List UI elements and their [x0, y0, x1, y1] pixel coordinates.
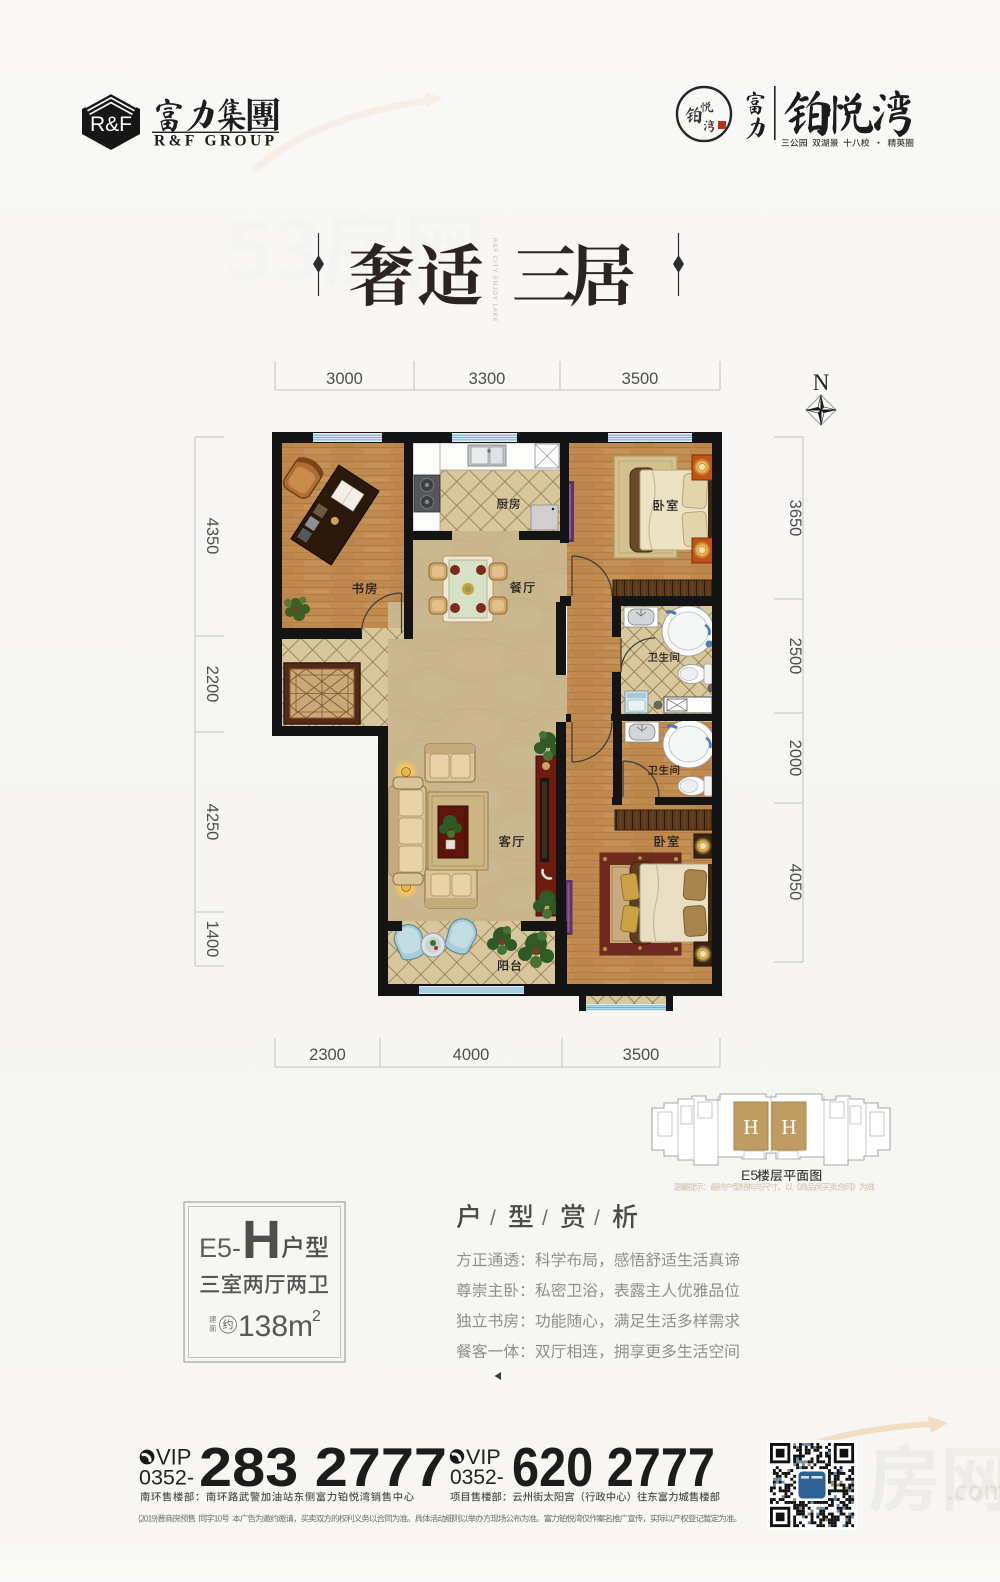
svg-text:4250: 4250: [203, 804, 221, 841]
svg-text:4000: 4000: [453, 1046, 490, 1064]
svg-text:R&F: R&F: [90, 113, 132, 136]
svg-text:138m: 138m: [238, 1310, 313, 1343]
svg-text:283 2777: 283 2777: [199, 1436, 447, 1498]
svg-text:/: /: [594, 1207, 600, 1230]
svg-text:0352-: 0352-: [450, 1466, 504, 1489]
svg-text:E5: E5: [741, 1167, 758, 1183]
svg-text:H: H: [242, 1210, 281, 1270]
svg-text:3500: 3500: [623, 1046, 660, 1064]
svg-text:620 2777: 620 2777: [512, 1436, 715, 1498]
svg-text:3500: 3500: [622, 370, 659, 388]
svg-text:2200: 2200: [203, 666, 221, 703]
svg-text:2500: 2500: [786, 638, 804, 675]
svg-text:H: H: [743, 1115, 758, 1139]
svg-text:E5-: E5-: [199, 1233, 241, 1263]
svg-text:3300: 3300: [469, 370, 506, 388]
svg-text:R&F CITY ENJOY LAKE: R&F CITY ENJOY LAKE: [491, 238, 497, 323]
svg-text:/: /: [490, 1207, 496, 1230]
svg-text:/: /: [542, 1207, 548, 1230]
svg-text:H: H: [781, 1115, 796, 1139]
svg-text:0352-: 0352-: [139, 1466, 194, 1490]
svg-text:R&F GROUP: R&F GROUP: [154, 133, 277, 150]
svg-text:4050: 4050: [786, 864, 804, 901]
svg-text:3000: 3000: [326, 370, 363, 388]
svg-text:2: 2: [312, 1308, 321, 1325]
svg-text:4350: 4350: [203, 518, 221, 555]
svg-text:2000: 2000: [786, 740, 804, 777]
svg-text:2300: 2300: [309, 1046, 346, 1064]
svg-text:N: N: [813, 370, 830, 395]
svg-text:1400: 1400: [203, 921, 221, 958]
svg-text:3650: 3650: [786, 500, 804, 537]
